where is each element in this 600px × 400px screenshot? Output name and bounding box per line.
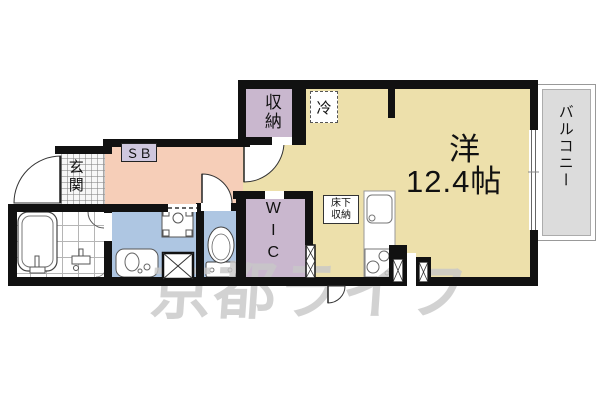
overlay-layer <box>0 0 600 400</box>
underfloor-storage-label: 床下 収納 <box>323 195 359 224</box>
floor-plan: 京都ライフ <box>0 0 600 400</box>
pipe-space-box <box>163 253 193 279</box>
balcony-label: バルコニー <box>557 104 573 189</box>
underfloor-storage-line2: 収納 <box>331 210 351 222</box>
refrigerator-label: 冷 <box>310 91 338 123</box>
main-room-size: 12.4帖 <box>406 166 502 199</box>
wic-folding-door <box>306 245 315 278</box>
shoe-box-label: ＳＢ <box>121 143 157 162</box>
underfloor-storage-line1: 床下 <box>331 198 351 210</box>
closet-label: 収納 <box>262 93 280 131</box>
south-window-b <box>419 262 428 282</box>
refrigerator-text: 冷 <box>316 97 331 118</box>
wic-label: WIC <box>264 200 281 266</box>
south-door-arc <box>328 286 345 303</box>
window-glazing <box>528 130 539 230</box>
shoe-box-text: ＳＢ <box>126 143 152 162</box>
entrance-label: 玄関 <box>67 159 83 195</box>
south-window-a <box>393 259 403 282</box>
main-room-name: 洋 <box>449 134 481 167</box>
